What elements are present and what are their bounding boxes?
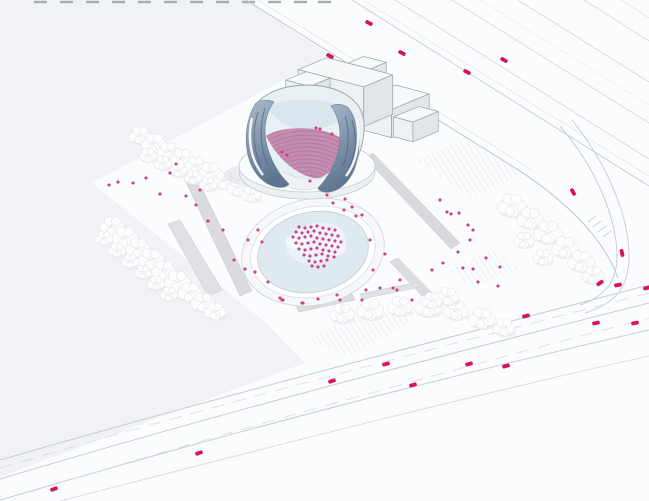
person [261, 241, 264, 244]
tree-foliage [499, 328, 506, 335]
tree-foliage [559, 249, 568, 258]
person [344, 198, 347, 201]
person [319, 128, 322, 131]
person [331, 245, 334, 248]
person [233, 259, 236, 262]
tree-foliage [504, 319, 512, 327]
person [462, 267, 465, 270]
person [337, 246, 340, 249]
tree-foliage [364, 311, 373, 320]
person [355, 215, 358, 218]
tree-foliage [202, 293, 211, 302]
person [207, 220, 210, 223]
person [379, 287, 382, 290]
person [303, 254, 306, 257]
person [334, 240, 337, 243]
tree-foliage [137, 239, 146, 248]
person [361, 299, 364, 302]
tree-foliage [163, 261, 172, 270]
person [369, 239, 372, 242]
tree-foliage [148, 148, 154, 154]
person [304, 236, 307, 239]
tree-foliage [233, 188, 240, 195]
tree-foliage [130, 254, 136, 260]
person [316, 237, 319, 240]
tree-foliage [529, 208, 539, 218]
person [298, 248, 301, 251]
tree-foliage [593, 267, 601, 275]
tree-foliage [476, 320, 485, 329]
tree-foliage [140, 127, 148, 135]
person [195, 204, 198, 207]
person [431, 269, 434, 272]
person [292, 236, 295, 239]
person [319, 243, 322, 246]
tree-foliage [169, 287, 175, 293]
architectural-site-plan [0, 0, 649, 501]
person [333, 256, 336, 259]
person [446, 211, 449, 214]
person [467, 224, 470, 227]
person [499, 266, 502, 269]
person [334, 251, 337, 254]
person [365, 289, 368, 292]
person [472, 229, 475, 232]
person [320, 260, 323, 263]
tree-foliage [524, 233, 531, 240]
person [327, 255, 330, 258]
person [316, 225, 319, 228]
tree-foliage [104, 231, 110, 237]
person [458, 212, 461, 215]
person [469, 239, 472, 242]
person [308, 260, 311, 263]
tree-foliage [524, 220, 533, 229]
tree-foliage [174, 171, 180, 177]
tree-foliage [519, 241, 525, 247]
tree-foliage [547, 221, 557, 231]
tree-foliage [184, 294, 192, 302]
tree-foliage [448, 288, 456, 296]
tree-foliage [152, 284, 158, 290]
tree-foliage [176, 271, 186, 281]
tree-foliage [443, 297, 450, 304]
person [145, 177, 148, 180]
person [326, 194, 329, 197]
person [328, 239, 331, 242]
tree-foliage [208, 177, 214, 183]
person [411, 299, 414, 302]
tree-foliage [564, 237, 574, 247]
person [254, 271, 257, 274]
tree-foliage [126, 262, 132, 268]
person [247, 239, 250, 242]
person [309, 255, 312, 258]
tree-foliage [189, 283, 198, 292]
person [298, 226, 301, 229]
tree-foliage [111, 217, 120, 226]
person [295, 242, 298, 245]
person [222, 229, 225, 232]
person [372, 269, 375, 272]
person [322, 227, 325, 230]
person [313, 230, 316, 233]
tree-foliage [144, 156, 150, 162]
tree-foliage [511, 194, 521, 204]
person [339, 299, 342, 302]
person [322, 238, 325, 241]
tree-foliage [588, 276, 595, 283]
person [304, 227, 307, 230]
tree-foliage [204, 185, 210, 191]
person [331, 133, 334, 136]
tree-foliage [209, 163, 218, 172]
tree-foliage [505, 207, 514, 216]
person [257, 229, 260, 232]
person [317, 266, 320, 269]
person [485, 257, 488, 260]
person [314, 261, 317, 264]
person [325, 244, 328, 247]
tree-foliage [450, 312, 458, 320]
tree-foliage [100, 239, 106, 245]
tree-foliage [538, 258, 544, 264]
person [328, 228, 331, 231]
person [311, 265, 314, 268]
tree-foliage [163, 156, 169, 162]
person [392, 287, 395, 290]
person [310, 235, 313, 238]
person [325, 233, 328, 236]
person [185, 195, 188, 198]
tree-foliage [165, 295, 171, 301]
person [442, 262, 445, 265]
person [117, 181, 120, 184]
person [472, 268, 475, 271]
tree-foliage [394, 308, 402, 316]
person [313, 241, 316, 244]
person [334, 229, 337, 232]
person [244, 268, 247, 271]
person [298, 237, 301, 240]
tree-foliage [575, 263, 584, 272]
tree-foliage [369, 299, 379, 309]
person [323, 265, 326, 268]
person [309, 180, 312, 183]
person [317, 298, 320, 301]
person [396, 289, 399, 292]
tree-foliage [432, 293, 439, 300]
tree-foliage [197, 304, 205, 312]
tree-foliage [215, 303, 223, 311]
person [457, 251, 460, 254]
tree-foliage [153, 134, 162, 143]
tree-foliage [135, 136, 142, 143]
person [267, 281, 270, 284]
tree-foliage [193, 170, 199, 176]
person [326, 259, 329, 262]
person [295, 231, 298, 234]
tree-foliage [178, 163, 184, 169]
person [281, 299, 284, 302]
person [337, 235, 340, 238]
tree-foliage [139, 273, 145, 279]
person [361, 214, 364, 217]
person [497, 285, 500, 288]
person [340, 241, 343, 244]
person [307, 231, 310, 234]
tree-foliage [399, 297, 408, 306]
tree-foliage [156, 276, 162, 282]
person [336, 294, 339, 297]
person [108, 184, 111, 187]
person [302, 302, 305, 305]
tree-foliage [117, 243, 123, 249]
tree-foliage [124, 227, 134, 237]
tree-foliage [196, 157, 204, 165]
axonometric-rendering-canvas [0, 0, 649, 501]
tree-foliage [336, 315, 344, 323]
person [301, 243, 304, 246]
person [315, 254, 318, 257]
person [286, 154, 289, 157]
tree-foliage [422, 308, 431, 317]
tree-foliage [543, 250, 550, 257]
tree-foliage [113, 251, 119, 257]
tree-foliage [427, 301, 433, 307]
person [159, 193, 162, 196]
person [332, 202, 335, 205]
person [450, 213, 453, 216]
tree-foliage [219, 181, 226, 188]
person [343, 209, 346, 212]
person [132, 182, 135, 185]
person [331, 234, 334, 237]
person [399, 279, 402, 282]
tree-foliage [159, 164, 165, 170]
person [384, 253, 387, 256]
person [321, 253, 324, 256]
person [310, 248, 313, 251]
tree-foliage [150, 249, 160, 259]
person [281, 151, 284, 154]
tree-foliage [341, 304, 350, 313]
tree-foliage [246, 195, 252, 201]
person [169, 172, 172, 175]
tree-foliage [143, 265, 149, 271]
person [301, 232, 304, 235]
person [316, 247, 319, 250]
tree-foliage [580, 251, 590, 261]
tree-foliage [189, 178, 195, 184]
tree-foliage [210, 312, 217, 319]
person [319, 232, 322, 235]
person [304, 249, 307, 252]
tree-foliage [541, 234, 550, 243]
person [307, 242, 310, 245]
person [439, 199, 442, 202]
person [175, 163, 178, 166]
person [315, 127, 318, 130]
person [199, 189, 202, 192]
person [322, 249, 325, 252]
person [328, 250, 331, 253]
tree-foliage [168, 143, 176, 151]
person [310, 226, 313, 229]
person [477, 281, 480, 284]
tree-foliage [481, 308, 491, 318]
person [351, 206, 354, 209]
tree-foliage [181, 149, 190, 158]
